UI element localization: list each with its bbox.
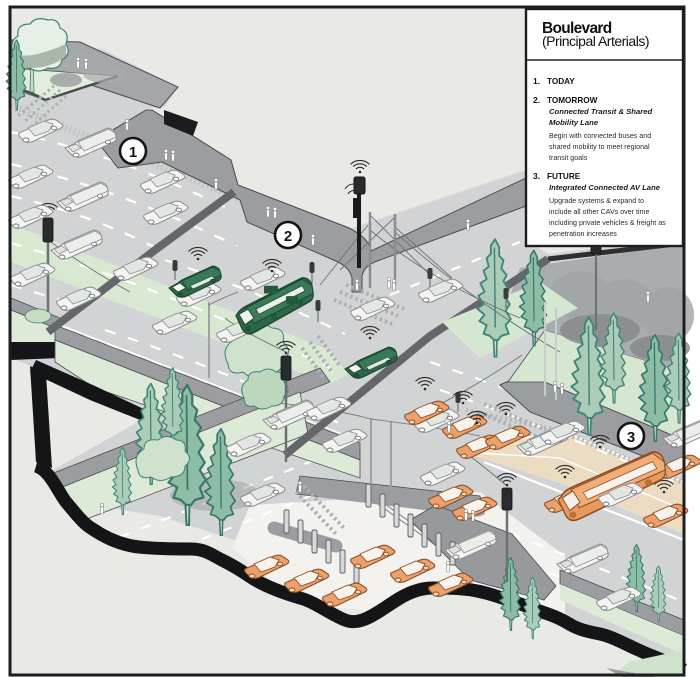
svg-text:Begin with connected buses and: Begin with connected buses and — [549, 132, 651, 140]
svg-text:3.: 3. — [533, 171, 540, 181]
svg-text:1: 1 — [129, 144, 137, 161]
svg-text:Integrated Connected AV Lane: Integrated Connected AV Lane — [549, 183, 661, 192]
svg-text:1.: 1. — [533, 76, 540, 86]
svg-text:2: 2 — [284, 228, 292, 245]
svg-text:transit goals: transit goals — [549, 154, 588, 162]
svg-text:Upgrade systems & expand to: Upgrade systems & expand to — [549, 197, 644, 205]
svg-text:TOMORROW: TOMORROW — [547, 96, 598, 105]
svg-text:penetration increases: penetration increases — [549, 230, 617, 238]
svg-text:include all other CAVs over ti: include all other CAVs over time — [549, 208, 649, 216]
svg-text:shared mobility to meet region: shared mobility to meet regional — [549, 143, 650, 151]
svg-text:TODAY: TODAY — [547, 77, 575, 86]
svg-text:Mobility Lane: Mobility Lane — [549, 118, 599, 127]
svg-text:2.: 2. — [533, 95, 540, 105]
svg-text:FUTURE: FUTURE — [547, 172, 581, 181]
svg-text:3: 3 — [627, 429, 635, 446]
svg-text:including private vehicles & f: including private vehicles & freight as — [549, 219, 666, 227]
svg-text:(Principal Arterials): (Principal Arterials) — [542, 33, 649, 49]
svg-text:Connected Transit & Shared: Connected Transit & Shared — [549, 107, 653, 116]
